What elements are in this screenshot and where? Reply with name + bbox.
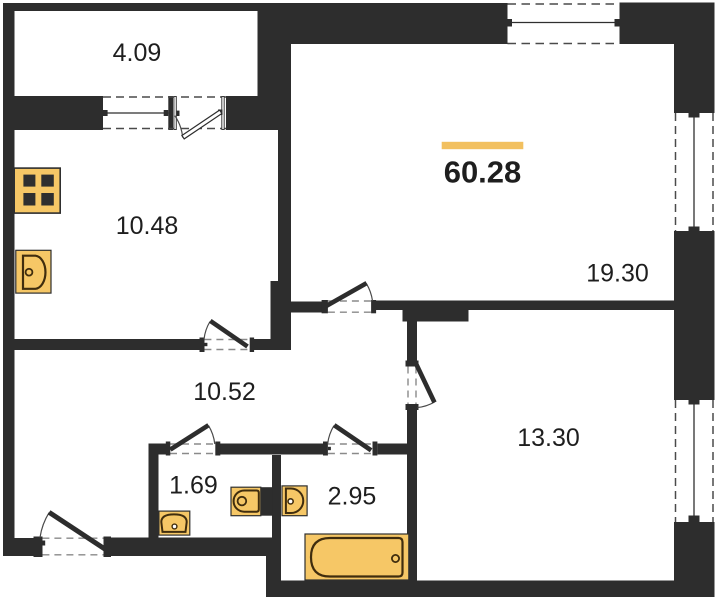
svg-text:10.48: 10.48: [116, 212, 179, 240]
svg-text:19.30: 19.30: [586, 260, 649, 288]
svg-text:1.69: 1.69: [169, 472, 218, 500]
svg-text:2.95: 2.95: [328, 483, 377, 511]
svg-text:10.52: 10.52: [193, 378, 256, 406]
svg-text:4.09: 4.09: [113, 39, 162, 67]
svg-text:60.28: 60.28: [444, 155, 522, 190]
svg-text:13.30: 13.30: [517, 424, 580, 452]
